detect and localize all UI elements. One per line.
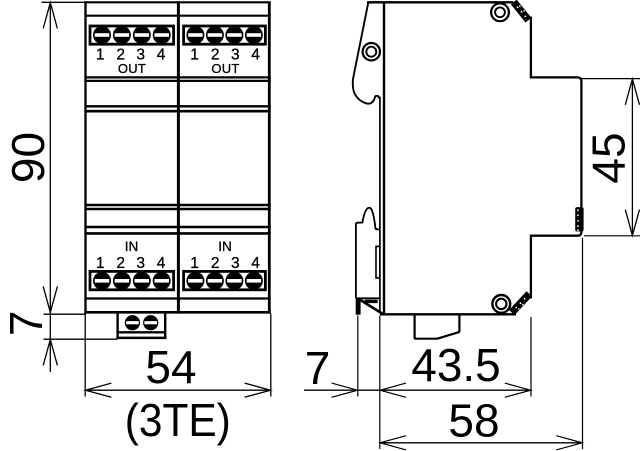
svg-text:45: 45 (583, 132, 635, 183)
svg-text:4: 4 (157, 255, 166, 272)
svg-text:4: 4 (251, 46, 260, 63)
svg-text:43.5: 43.5 (411, 339, 501, 391)
svg-text:IN: IN (218, 239, 232, 254)
svg-text:IN: IN (125, 239, 139, 254)
svg-text:4: 4 (251, 255, 260, 272)
svg-text:90: 90 (2, 132, 54, 183)
svg-text:OUT: OUT (211, 61, 239, 76)
svg-text:1: 1 (96, 255, 105, 272)
svg-text:54: 54 (145, 341, 196, 393)
svg-text:2: 2 (211, 255, 220, 272)
svg-text:7: 7 (305, 342, 331, 394)
svg-text:OUT: OUT (118, 61, 146, 76)
svg-text:7: 7 (0, 311, 52, 337)
svg-text:1: 1 (190, 255, 199, 272)
svg-text:1: 1 (190, 46, 199, 63)
svg-text:3: 3 (231, 255, 240, 272)
svg-text:58: 58 (448, 395, 499, 447)
svg-text:(3TE): (3TE) (125, 394, 231, 446)
svg-text:2: 2 (116, 255, 125, 272)
svg-text:3: 3 (136, 255, 145, 272)
svg-text:1: 1 (96, 46, 105, 63)
svg-text:4: 4 (157, 46, 166, 63)
